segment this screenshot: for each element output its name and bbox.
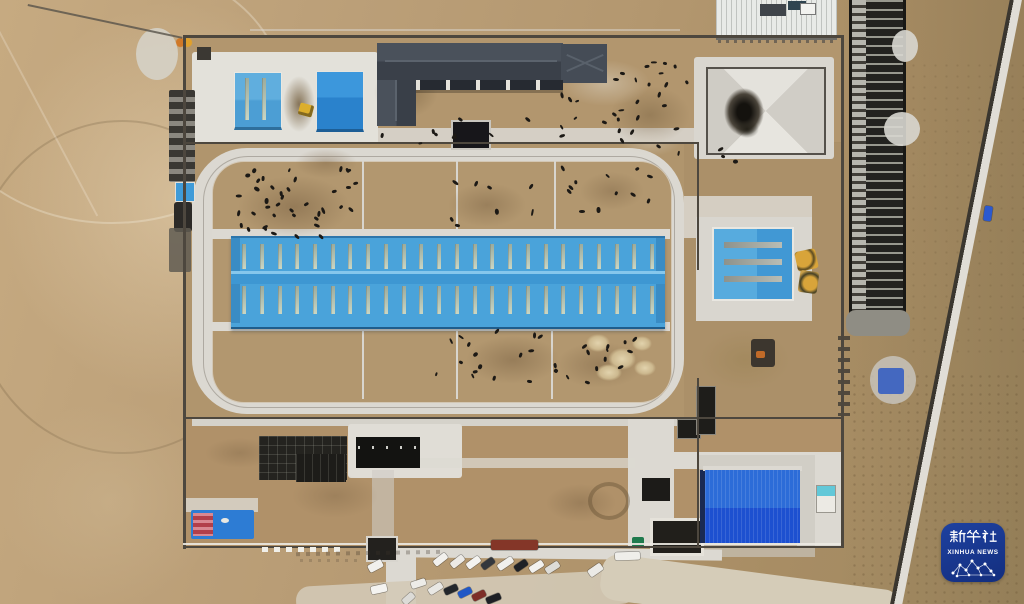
barn-skylight: [419, 286, 423, 314]
office-building-east-block: [561, 44, 607, 83]
cattle-dot: [533, 333, 536, 339]
white-corrugated-building: [716, 0, 837, 40]
office-ridge: [385, 60, 557, 62]
red-tarp-part: [193, 513, 213, 536]
barn-skylight: [579, 286, 583, 314]
basin-sludge-2: [735, 120, 759, 138]
barn-skylight: [561, 244, 565, 269]
yellow-loader-east-1: [794, 248, 819, 272]
barn-skylight: [597, 286, 601, 314]
cattle-dot: [265, 198, 269, 204]
ground-stain: [295, 148, 357, 178]
barn-skylight: [295, 244, 299, 269]
barn-skylight: [260, 244, 264, 269]
ground-ring-mark: [588, 482, 630, 520]
fence-west: [183, 35, 186, 549]
corrugated-dotted-edge: [718, 40, 836, 43]
cattle-dot: [595, 366, 599, 371]
barn-skylight: [632, 244, 636, 269]
hay-pile: [634, 360, 656, 376]
barn-skylight: [526, 286, 530, 314]
cattle-dot: [317, 211, 321, 217]
blue-tarp-east: [878, 368, 904, 394]
barn-skylight: [402, 286, 406, 314]
barn-skylight: [490, 244, 494, 269]
fence-inner-south: [184, 417, 843, 419]
barn-skylight: [384, 286, 388, 314]
vehicle: [480, 557, 495, 571]
barn-skylight: [473, 286, 477, 314]
mid-gate-structure: [640, 476, 672, 503]
barn-skylight: [348, 286, 352, 314]
vehicle: [491, 540, 538, 550]
barn-ridge-band: [231, 274, 665, 284]
ground-stain: [580, 172, 644, 210]
barn-skylight: [508, 244, 512, 269]
aerial-photo: 新华社 XINHUA NEWS: [0, 0, 1024, 604]
barn-skylight: [366, 244, 370, 269]
office-wall-windows: [416, 80, 563, 90]
barn-skylight: [597, 244, 601, 269]
terrain-speckles-2: [908, 60, 1024, 360]
dark-equipment: [751, 339, 775, 367]
ground-stain: [448, 183, 526, 227]
vehicle: [513, 559, 529, 573]
cattle-dot: [733, 160, 738, 164]
cattle-dot: [613, 77, 619, 81]
cattle-dot: [597, 206, 601, 212]
barn-skylight: [579, 244, 583, 269]
barn-skylight: [455, 286, 459, 314]
debris-column: [838, 336, 850, 416]
blue-tarp-pile: [191, 510, 254, 539]
cattle-dot: [553, 363, 556, 368]
ground-stain: [700, 330, 790, 390]
north-pipe-line: [250, 29, 680, 31]
xinhua-watermark: 新华社 XINHUA NEWS: [941, 523, 1005, 582]
barn-skylight: [242, 286, 246, 314]
barn-skylight: [455, 244, 459, 269]
xinhua-constellation-icon: [947, 558, 999, 578]
barn-skylight: [650, 244, 654, 269]
rooftop-unit-3: [800, 3, 816, 15]
rooftop-unit-1: [760, 4, 786, 16]
office-building-main: [377, 43, 563, 80]
barn-skylight: [508, 286, 512, 314]
barn-skylight: [437, 286, 441, 314]
fence-inner-vertical-a: [697, 142, 699, 270]
white-patch-ne-2: [884, 112, 920, 146]
blue-shed-west: [234, 72, 282, 130]
road-marks-2: [300, 559, 360, 562]
pen-divider-s1: [362, 327, 364, 399]
rebar-foundation-grid-2: [296, 454, 346, 482]
barn-skylight: [437, 244, 441, 269]
barn-skylight: [331, 244, 335, 269]
xinhua-en-text: XINHUA NEWS: [941, 550, 1005, 556]
cattle-barn: [231, 236, 665, 329]
shed-skylight-2: [262, 78, 266, 120]
barn-skylight: [278, 286, 282, 314]
blue-warehouse: [705, 470, 800, 543]
south-gate: [366, 536, 398, 562]
blue-shed-east: [316, 71, 364, 132]
orange-part: [756, 351, 765, 358]
barn-skylight: [544, 286, 548, 314]
vent-slit-3: [724, 276, 782, 282]
cattle-dot: [527, 348, 534, 352]
white-patch-ne-1: [892, 30, 918, 62]
truss-ladder: [852, 0, 866, 319]
fence-inner-vertical-b: [697, 378, 699, 548]
xinhua-cn-glyphs: [949, 530, 997, 545]
barn-skylight: [278, 244, 282, 269]
xinhua-cn-text: 新华社: [949, 523, 950, 524]
barn-skylight: [632, 286, 636, 314]
vehicle: [615, 552, 640, 561]
wide-road-west: [295, 569, 636, 604]
warehouse-ribs: [705, 470, 800, 543]
fence-north: [183, 35, 843, 38]
barn-skylight: [295, 286, 299, 314]
fence-east: [841, 35, 844, 548]
vent-slit-2: [724, 259, 782, 265]
cattle-dot: [662, 61, 667, 65]
barn-skylight: [348, 244, 352, 269]
material-stack-2: [169, 228, 191, 272]
barn-skylight: [490, 286, 494, 314]
barn-skylight: [313, 244, 317, 269]
cattle-dot: [236, 195, 242, 198]
pen-divider-n1: [362, 161, 364, 233]
barn-skylight: [402, 244, 406, 269]
barn-skylight: [242, 244, 246, 269]
solar-panel-2: [696, 386, 716, 435]
barn-skylight: [473, 244, 477, 269]
barn-skylight: [615, 244, 619, 269]
material-stack: [169, 90, 195, 182]
barn-skylight: [544, 244, 548, 269]
barn-skylight: [260, 286, 264, 314]
cattle-dot: [240, 222, 243, 227]
tarp-white-spot: [221, 518, 229, 523]
yellow-loader-east-2: [798, 270, 820, 294]
black-roof-building: [356, 437, 420, 468]
shed-skylight-1: [245, 78, 249, 120]
vent-slit-1: [724, 242, 782, 248]
barn-skylight: [366, 286, 370, 314]
office-wall-shadow: [416, 90, 563, 93]
east-blue-building: [712, 227, 794, 301]
cattle-dot: [262, 176, 265, 181]
cyan-utility-box: [816, 485, 836, 513]
vehicle: [528, 559, 544, 573]
barn-skylight: [615, 286, 619, 314]
ground-stain: [466, 336, 560, 384]
barn-skylight: [313, 286, 317, 314]
black-pool: [650, 518, 704, 556]
barn-skylight: [331, 286, 335, 314]
pen-divider-n3: [554, 161, 556, 233]
barn-skylight: [526, 244, 530, 269]
roof-speckle-row: [358, 446, 418, 449]
barn-skylight: [419, 244, 423, 269]
barn-skylight: [650, 286, 654, 314]
pen-divider-s2: [456, 327, 458, 399]
truss-end-blob: [846, 310, 910, 336]
barn-skylight: [384, 244, 388, 269]
feed-pit-north: [451, 120, 491, 150]
barn-skylight: [561, 286, 565, 314]
nw-gate-block: [197, 47, 211, 60]
